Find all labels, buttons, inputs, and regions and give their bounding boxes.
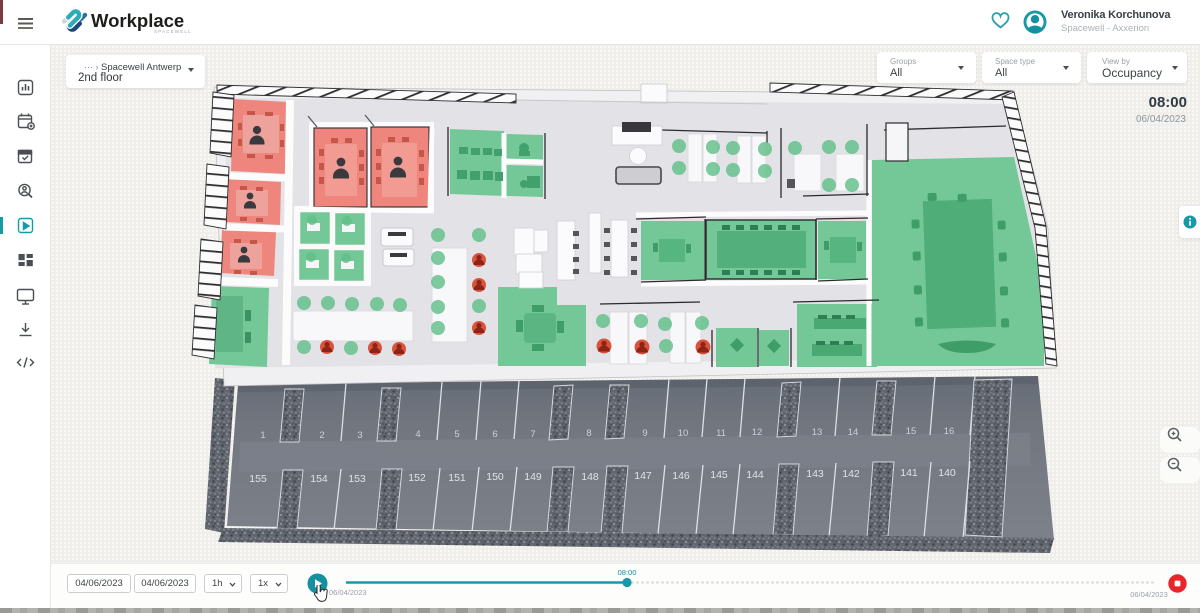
svg-text:9: 9 [642, 428, 647, 439]
svg-text:146: 146 [672, 470, 690, 482]
svg-text:145: 145 [710, 469, 728, 481]
svg-text:10: 10 [678, 428, 689, 439]
svg-text:7: 7 [530, 429, 535, 440]
svg-text:1: 1 [260, 430, 265, 441]
svg-text:142: 142 [842, 468, 860, 480]
svg-text:16: 16 [944, 426, 955, 437]
svg-text:15: 15 [906, 426, 917, 437]
svg-text:140: 140 [938, 467, 956, 479]
svg-text:3: 3 [357, 430, 362, 441]
svg-text:144: 144 [746, 469, 764, 481]
svg-text:8: 8 [586, 428, 591, 439]
svg-text:2: 2 [319, 430, 324, 441]
svg-text:11: 11 [716, 428, 726, 439]
svg-text:151: 151 [448, 472, 466, 484]
svg-text:150: 150 [486, 471, 504, 483]
svg-text:141: 141 [900, 467, 918, 479]
svg-text:152: 152 [408, 472, 426, 484]
svg-text:149: 149 [524, 471, 542, 483]
svg-text:148: 148 [581, 471, 599, 483]
svg-text:147: 147 [634, 470, 652, 482]
svg-text:08:00: 08:00 [618, 568, 637, 577]
svg-text:155: 155 [249, 473, 267, 485]
svg-text:5: 5 [454, 429, 459, 440]
svg-text:143: 143 [806, 468, 824, 480]
svg-text:06/04/2023: 06/04/2023 [1130, 590, 1168, 599]
svg-text:154: 154 [310, 473, 328, 485]
svg-text:153: 153 [348, 473, 366, 485]
svg-text:14: 14 [848, 427, 859, 438]
svg-text:6: 6 [492, 429, 497, 440]
svg-text:13: 13 [812, 427, 823, 438]
svg-text:12: 12 [752, 427, 763, 438]
svg-text:4: 4 [415, 429, 420, 440]
